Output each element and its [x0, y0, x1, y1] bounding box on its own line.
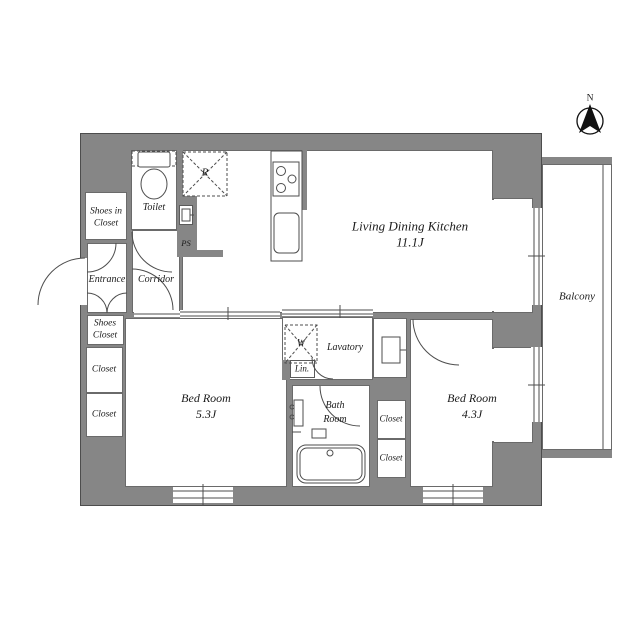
- label-corridor: Corridor: [138, 275, 174, 285]
- floor-plan: Living Dining Kitchen 11.1J Bed Room 5.3…: [0, 0, 640, 640]
- label-shoes-in-closet-2: Closet: [94, 219, 118, 229]
- label-closet-right-2: Closet: [379, 454, 402, 463]
- ldk-seam: [492, 200, 494, 311]
- label-shoes-closet-2: Closet: [93, 331, 117, 341]
- label-entrance: Entrance: [89, 275, 126, 285]
- label-shoes-closet-1: Shoes: [94, 319, 116, 329]
- wall-kitchen: [302, 150, 307, 210]
- label-linen: Lin.: [295, 365, 309, 374]
- label-bedroom-a-size: 5.3J: [196, 408, 216, 420]
- wall-ps-step: [177, 250, 223, 257]
- label-ldk-name: Living Dining Kitchen: [352, 220, 468, 233]
- wall-linen-left: [282, 360, 290, 380]
- label-bedroom-b-size: 4.3J: [462, 408, 482, 420]
- label-toilet: Toilet: [143, 203, 165, 213]
- front-door-arc: [38, 258, 85, 305]
- label-closet-left-1: Closet: [92, 365, 116, 375]
- room-bedroom-b-east: [493, 347, 533, 443]
- balcony-top-wall: [542, 157, 612, 164]
- room-ldk-east: [493, 198, 533, 313]
- label-balcony: Balcony: [559, 292, 595, 303]
- room-utility: [373, 318, 407, 378]
- label-pipe-space: PS: [181, 239, 190, 248]
- label-closet-left-2: Closet: [92, 410, 116, 420]
- label-refrigerator: R: [202, 168, 209, 179]
- label-washing-machine: W: [297, 339, 305, 349]
- room-toilet: [131, 150, 177, 230]
- label-bedroom-b-name: Bed Room: [447, 392, 497, 404]
- room-balcony: [542, 164, 612, 450]
- label-compass-north: N: [587, 94, 594, 104]
- label-bedroom-a-name: Bed Room: [181, 392, 231, 404]
- label-bath-1: Bath: [326, 401, 345, 411]
- pipe-space-box: [179, 205, 193, 225]
- label-ldk-size: 11.1J: [396, 236, 424, 249]
- compass-icon: [577, 104, 603, 134]
- room-corridor: [132, 230, 180, 313]
- label-lavatory: Lavatory: [327, 343, 363, 353]
- label-bath-2: Room: [323, 415, 346, 425]
- label-shoes-in-closet-1: Shoes in: [90, 207, 122, 217]
- balcony-bottom-wall: [542, 450, 612, 458]
- label-closet-right-1: Closet: [379, 415, 402, 424]
